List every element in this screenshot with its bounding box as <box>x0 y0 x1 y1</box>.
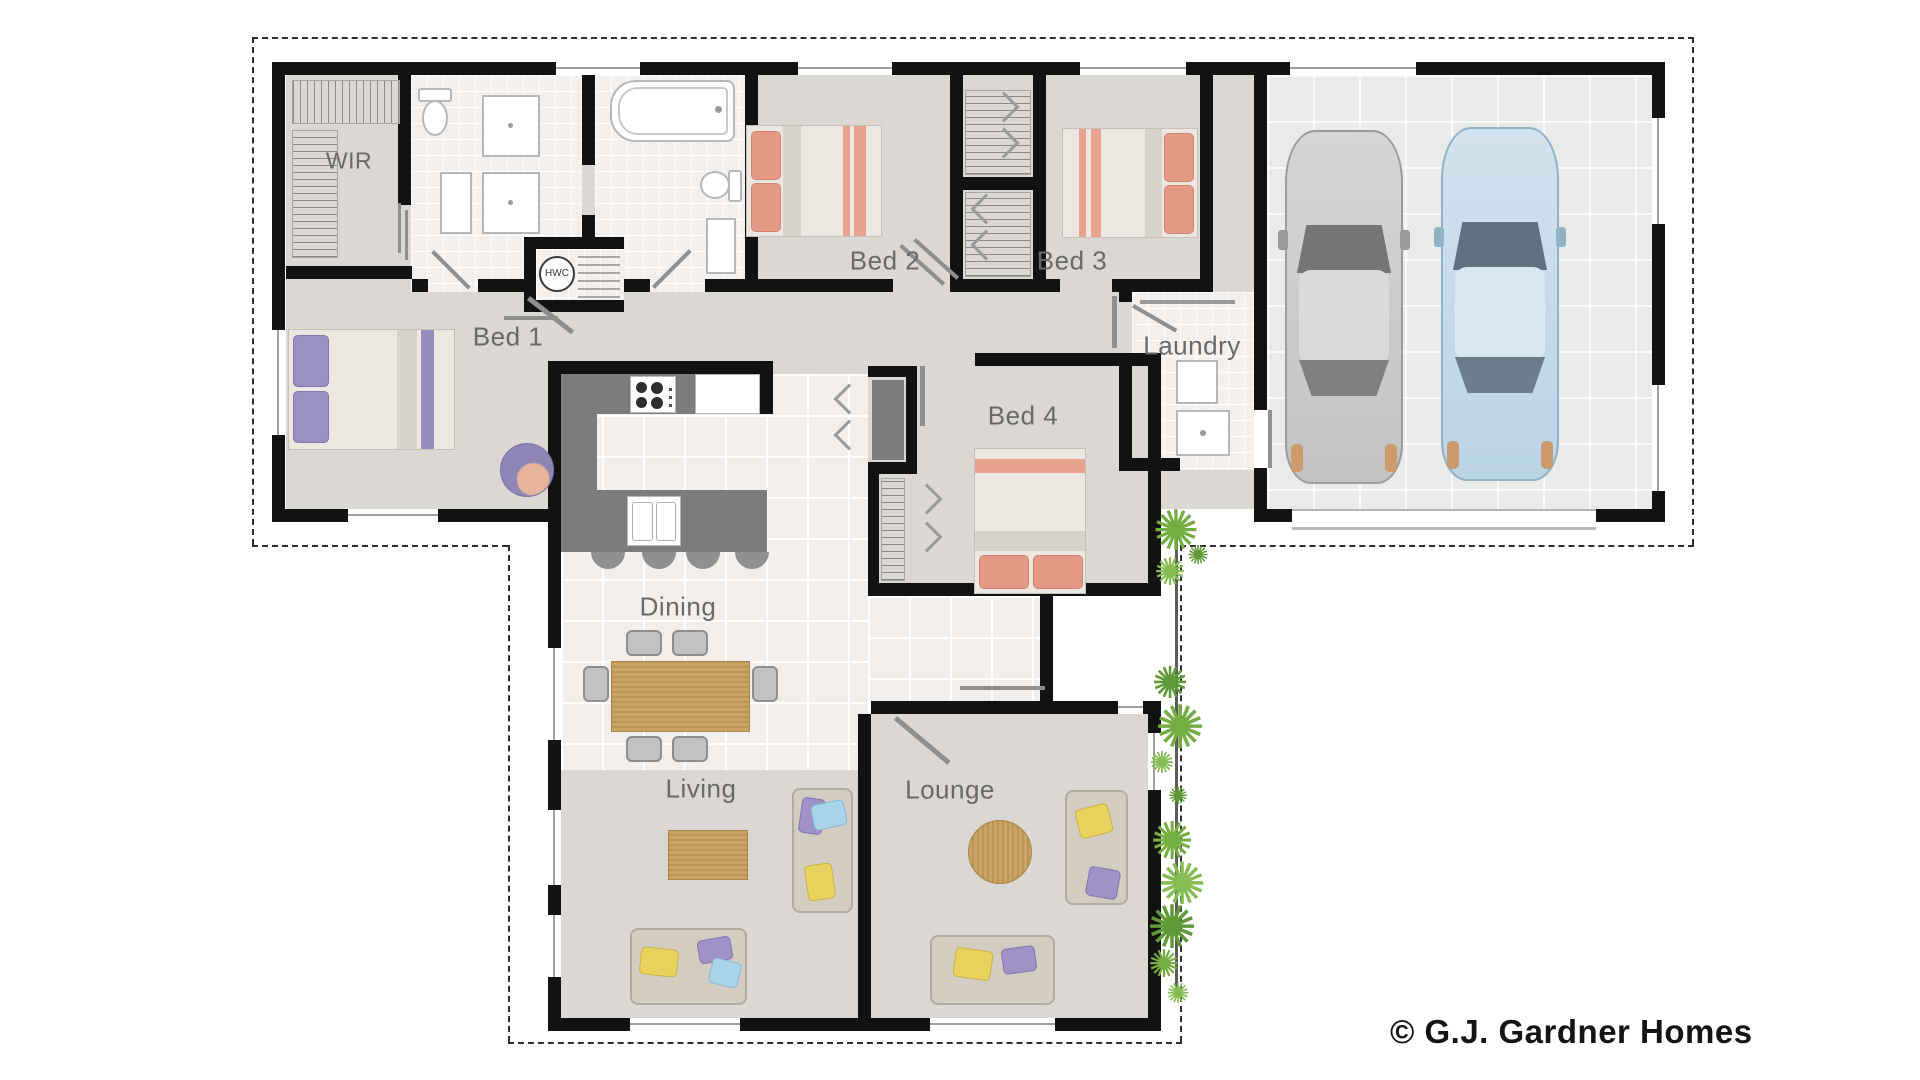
tree-icon: ✺ <box>1149 749 1174 779</box>
wall <box>582 75 595 165</box>
wall <box>624 279 650 292</box>
shower-drain-icon <box>508 123 513 128</box>
cushion-icon <box>810 799 849 832</box>
room-label-living: Living <box>666 774 737 805</box>
room-label-bed4: Bed 4 <box>988 401 1058 432</box>
hwc-icon: HWC <box>539 256 575 292</box>
wall <box>478 279 524 292</box>
car-roof <box>1455 267 1545 361</box>
car-windshield <box>1453 222 1547 270</box>
wall <box>272 62 1665 75</box>
fridge-icon <box>695 374 760 414</box>
bathtub-icon <box>610 80 735 142</box>
room-label-laundry: Laundry <box>1143 331 1240 362</box>
site-boundary-line <box>252 545 508 547</box>
vanity-icon <box>440 172 472 234</box>
car-rear-window <box>1455 357 1545 393</box>
site-boundary-line <box>1692 37 1694 545</box>
laundry-tub-icon <box>1176 360 1218 404</box>
tap-icon <box>715 106 722 113</box>
bed-stripe <box>421 330 434 449</box>
wardrobe-rack-icon <box>881 478 905 581</box>
bed-stripe <box>1091 129 1101 237</box>
wall <box>1046 279 1060 292</box>
pillow-icon <box>1164 185 1194 234</box>
site-boundary-line <box>252 37 1694 39</box>
double-bed-icon <box>746 125 882 237</box>
window-icon <box>1080 62 1186 75</box>
wall <box>868 462 917 474</box>
wall <box>548 361 773 374</box>
sliding-door-icon <box>405 210 408 260</box>
window-icon <box>548 648 561 740</box>
sink-basin <box>632 502 653 541</box>
window-icon <box>272 330 285 435</box>
room-label-wir: WIR <box>326 148 372 175</box>
site-boundary-line <box>1180 545 1694 547</box>
cushion-icon <box>639 946 680 978</box>
copyright-notice: © G.J. Gardner Homes <box>1390 1013 1753 1051</box>
bed-throw <box>397 330 417 449</box>
door-icon <box>1112 296 1117 348</box>
window-icon <box>1652 385 1665 491</box>
cushion-icon <box>707 957 742 989</box>
garage-door <box>1292 509 1596 522</box>
window-icon <box>798 62 892 75</box>
room-label-lounge: Lounge <box>905 775 995 806</box>
burner-icon <box>651 397 663 409</box>
sofa-icon <box>930 935 1055 1005</box>
laundry-bench-icon <box>1140 300 1235 304</box>
cooktop-icon <box>630 376 676 413</box>
door-icon <box>504 316 558 320</box>
window-icon <box>930 1018 1055 1031</box>
sliding-door-icon <box>630 1018 740 1031</box>
window-icon <box>548 915 561 977</box>
bed-stripe <box>854 126 866 236</box>
cushion-icon <box>1000 945 1037 975</box>
wall <box>858 714 871 1031</box>
car-wheel-icon <box>1385 444 1397 472</box>
pillow-icon <box>979 555 1029 589</box>
car-rear-window <box>1299 360 1389 396</box>
wall <box>286 266 412 279</box>
burner-icon <box>636 382 647 393</box>
window-icon <box>1118 701 1143 714</box>
door-icon <box>1268 410 1272 468</box>
pillow-icon <box>1033 555 1083 589</box>
bathtub-inner <box>618 87 728 135</box>
car-roof <box>1299 270 1389 364</box>
pillow-icon <box>751 183 781 232</box>
window-icon <box>348 509 438 522</box>
sofa-icon <box>1065 790 1128 905</box>
dining-chair-icon <box>672 630 708 656</box>
linen-shelf-icon <box>578 252 620 298</box>
toilet-icon <box>728 170 742 202</box>
wall <box>906 366 917 474</box>
tree-icon: ✺ <box>1154 553 1186 591</box>
site-boundary-line <box>252 37 254 545</box>
cooktop-controls <box>669 383 672 407</box>
bed-throw <box>975 531 1085 551</box>
bed-stripe <box>843 126 850 236</box>
wall <box>950 279 1046 292</box>
room-label-bed1: Bed 1 <box>473 322 543 353</box>
cushion-icon <box>1085 865 1122 900</box>
room-label-bed3: Bed 3 <box>1037 246 1107 277</box>
pillow-icon <box>293 391 329 443</box>
wall <box>412 279 428 292</box>
pillow-icon <box>1164 133 1194 182</box>
washer-dial-icon <box>1200 430 1206 436</box>
coffee-table-icon <box>668 830 748 880</box>
bed-stripe <box>975 459 1085 473</box>
dining-chair-icon <box>583 666 609 702</box>
cushion-icon <box>804 862 837 902</box>
round-table-icon <box>968 820 1032 884</box>
car-mirror-icon <box>1434 227 1444 247</box>
wall <box>1112 279 1200 292</box>
site-boundary-line <box>508 1042 1182 1044</box>
pantry-shelf-icon <box>872 380 904 460</box>
wall <box>975 353 1161 366</box>
bed-stripe <box>1079 129 1086 237</box>
toilet-icon <box>422 100 448 136</box>
window-icon <box>1652 118 1665 224</box>
wall <box>963 177 1033 190</box>
dining-chair-icon <box>626 630 662 656</box>
wall <box>950 75 963 292</box>
toilet-icon <box>700 171 730 199</box>
room-label-dining: Dining <box>640 592 717 623</box>
car-wheel-icon <box>1447 441 1459 469</box>
sofa-icon <box>792 788 853 913</box>
wall <box>705 279 758 292</box>
wardrobe-rack-icon <box>292 80 400 124</box>
car-mirror-icon <box>1278 230 1288 250</box>
pillow-icon <box>293 335 329 387</box>
garage-door-track <box>1292 527 1596 530</box>
hwc-label: HWC <box>545 268 569 279</box>
bed-throw <box>783 126 801 236</box>
window-icon <box>1290 62 1416 75</box>
window-icon <box>548 810 561 885</box>
vanity-icon <box>706 218 736 274</box>
site-boundary-line <box>508 545 510 1042</box>
car-mirror-icon <box>1556 227 1566 247</box>
washing-machine-icon <box>1176 410 1230 456</box>
double-bed-icon <box>974 448 1086 594</box>
sliding-door-icon <box>398 203 401 253</box>
wall <box>1200 75 1213 292</box>
wall <box>548 361 561 522</box>
wall <box>760 374 773 414</box>
double-bed-icon <box>1062 128 1198 238</box>
floor-plan: HWC <box>0 0 1920 1080</box>
sliding-door-icon <box>960 686 1045 690</box>
pillow-icon <box>751 131 781 180</box>
dining-chair-icon <box>626 736 662 762</box>
wall <box>758 279 893 292</box>
car-icon <box>1441 127 1559 481</box>
wall <box>272 62 285 522</box>
sink-basin <box>656 502 676 541</box>
wall <box>524 237 624 249</box>
tree-icon: ✺ <box>1168 784 1188 808</box>
car-wheel-icon <box>1291 444 1303 472</box>
dining-chair-icon <box>752 666 778 702</box>
door-opening <box>1254 410 1267 468</box>
cushion-icon <box>1074 802 1114 839</box>
armchair-icon <box>500 443 554 497</box>
burner-icon <box>651 382 663 394</box>
car-windshield <box>1297 225 1391 273</box>
wall <box>1119 292 1132 302</box>
cushion-icon <box>952 947 994 982</box>
window-icon <box>556 62 640 75</box>
car-icon <box>1285 130 1403 484</box>
bed-throw <box>1145 129 1162 237</box>
sink-icon <box>627 496 681 546</box>
tree-icon: ✺ <box>1166 980 1189 1008</box>
wall <box>1119 358 1132 470</box>
dining-table-icon <box>611 661 750 732</box>
tree-icon: ✺ <box>1187 543 1209 569</box>
car-mirror-icon <box>1400 230 1410 250</box>
burner-icon <box>636 397 647 408</box>
room-label-bed2: Bed 2 <box>850 246 920 277</box>
dining-chair-icon <box>672 736 708 762</box>
door-icon <box>920 366 925 426</box>
wall <box>868 474 879 583</box>
double-bed-icon <box>288 329 455 450</box>
sofa-icon <box>630 928 747 1005</box>
car-wheel-icon <box>1541 441 1553 469</box>
shower-drain-icon <box>508 200 513 205</box>
